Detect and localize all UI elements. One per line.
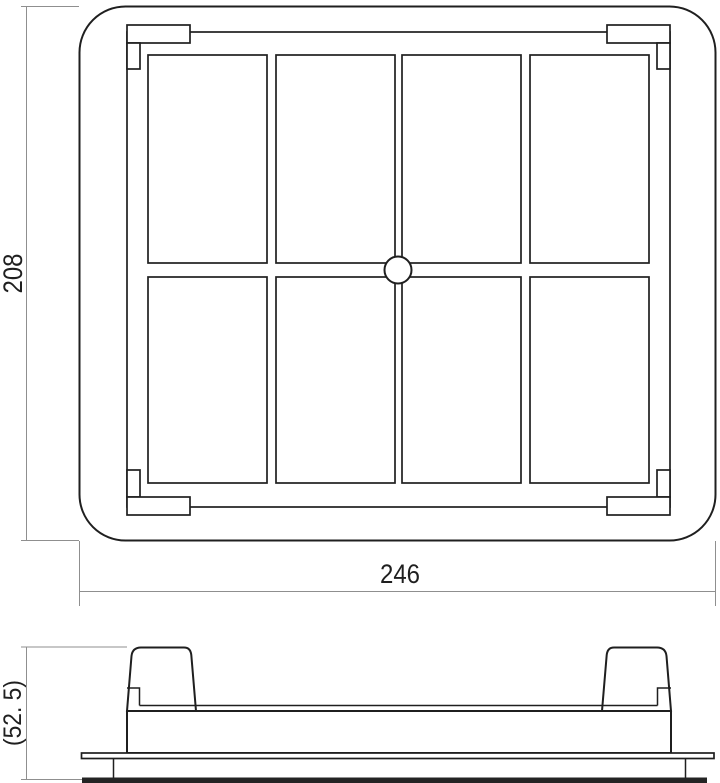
tab-bar: [607, 25, 670, 43]
tab-leg: [657, 470, 670, 497]
side-view: (52. 5): [0, 647, 714, 783]
grid-cell-r2c4: [530, 277, 649, 483]
bottom-plate: [82, 778, 707, 783]
grid-cell-r1c4: [530, 55, 649, 263]
tab-bar: [127, 25, 190, 43]
drawing-canvas: 208 246: [0, 0, 720, 783]
tab-bar: [127, 497, 190, 515]
center-boss: [385, 257, 412, 284]
dimension-label-height: 208: [0, 254, 28, 294]
dimension-height: 208: [0, 7, 79, 541]
tab-leg: [127, 43, 140, 69]
clip-bump-left: [127, 648, 196, 712]
grid-cell-r1c2: [276, 55, 395, 263]
grid-cell-r1c3: [402, 55, 521, 263]
dimension-side-height: (52. 5): [0, 647, 127, 780]
tab-leg: [657, 43, 670, 69]
grid-cell-r2c2: [276, 277, 395, 483]
dimension-label-side-height: (52. 5): [0, 680, 27, 746]
dimension-width: 246: [80, 541, 716, 606]
tab-leg: [127, 470, 140, 497]
tab-bar: [607, 497, 670, 515]
seal-flange: [82, 753, 715, 759]
frame-body: [127, 711, 671, 753]
top-view: 208 246: [0, 7, 716, 607]
clip-bump-right: [602, 648, 671, 712]
grid-cell-r2c1: [148, 277, 267, 483]
grid-cell-r1c1: [148, 55, 267, 263]
grid-cell-r2c3: [402, 277, 521, 483]
dimension-label-width: 246: [380, 559, 420, 589]
technical-drawing: 208 246: [0, 0, 720, 783]
